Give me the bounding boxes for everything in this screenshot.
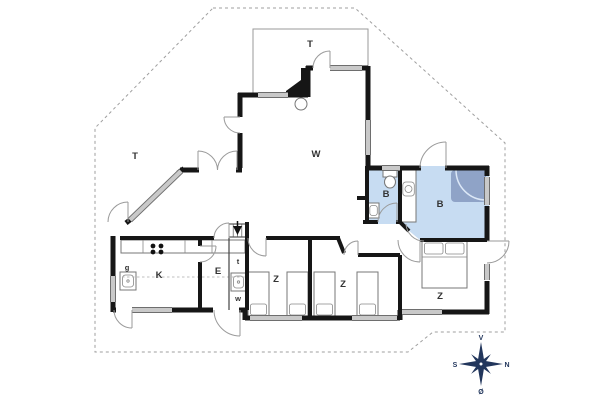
single-bed-icon bbox=[248, 272, 269, 318]
compass-label-west: V bbox=[479, 335, 484, 342]
double-bed-icon bbox=[422, 241, 467, 288]
wood-stove-icon bbox=[295, 98, 307, 110]
toilet-bowl bbox=[385, 176, 396, 188]
kitchen-counter bbox=[121, 240, 245, 253]
compass-center bbox=[479, 362, 483, 366]
single-bed-icon bbox=[357, 272, 378, 318]
compass-rose: V S N Ø bbox=[453, 335, 510, 396]
floorplan-page: T T W B B K E g t w Z Z Z V S N Ø bbox=[0, 0, 600, 400]
room-label-bathroom-large: B bbox=[437, 199, 444, 210]
room-label-terrace-left: T bbox=[132, 151, 138, 162]
loft-hatch-icon bbox=[229, 221, 246, 237]
room-label-toilet-nook: t bbox=[237, 257, 240, 266]
room-label-terrace-top: T bbox=[307, 39, 313, 50]
single-bed-icon bbox=[287, 272, 308, 318]
room-label-guest-wc: g bbox=[125, 263, 130, 272]
room-label-utility-nook: w bbox=[234, 294, 241, 303]
room-label-bathroom-small: B bbox=[383, 189, 390, 200]
room-label-bedroom-right: Z bbox=[437, 291, 443, 302]
compass-label-south: S bbox=[453, 362, 458, 369]
room-label-bedroom-middle: Z bbox=[340, 279, 346, 290]
single-bed-icon bbox=[314, 272, 335, 318]
room-label-bedroom-left: Z bbox=[273, 274, 279, 285]
compass-label-east: Ø bbox=[478, 389, 484, 396]
compass-label-north: N bbox=[504, 362, 509, 369]
room-label-kitchen: K bbox=[156, 270, 163, 281]
floorplan-drawing: T T W B B K E g t w Z Z Z V S N Ø bbox=[0, 0, 600, 400]
room-label-living-room: W bbox=[312, 149, 321, 160]
room-label-entry: E bbox=[215, 266, 221, 277]
furniture bbox=[120, 98, 467, 318]
